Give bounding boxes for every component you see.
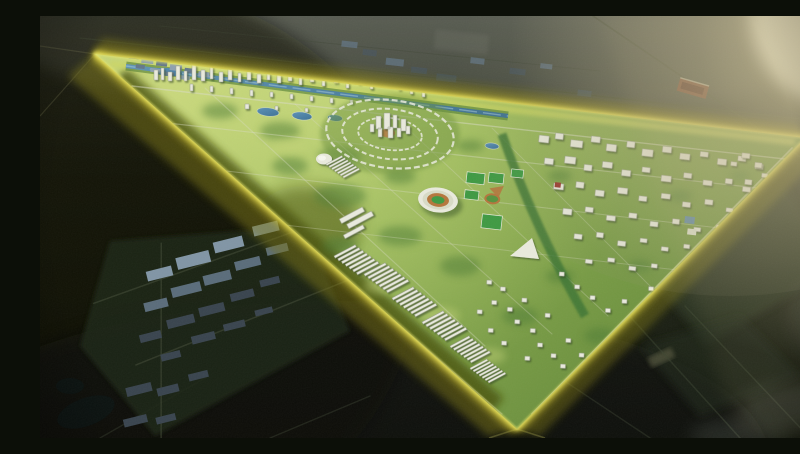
aerial-render <box>40 16 800 438</box>
render-canvas <box>40 16 800 438</box>
vignette <box>40 16 800 438</box>
